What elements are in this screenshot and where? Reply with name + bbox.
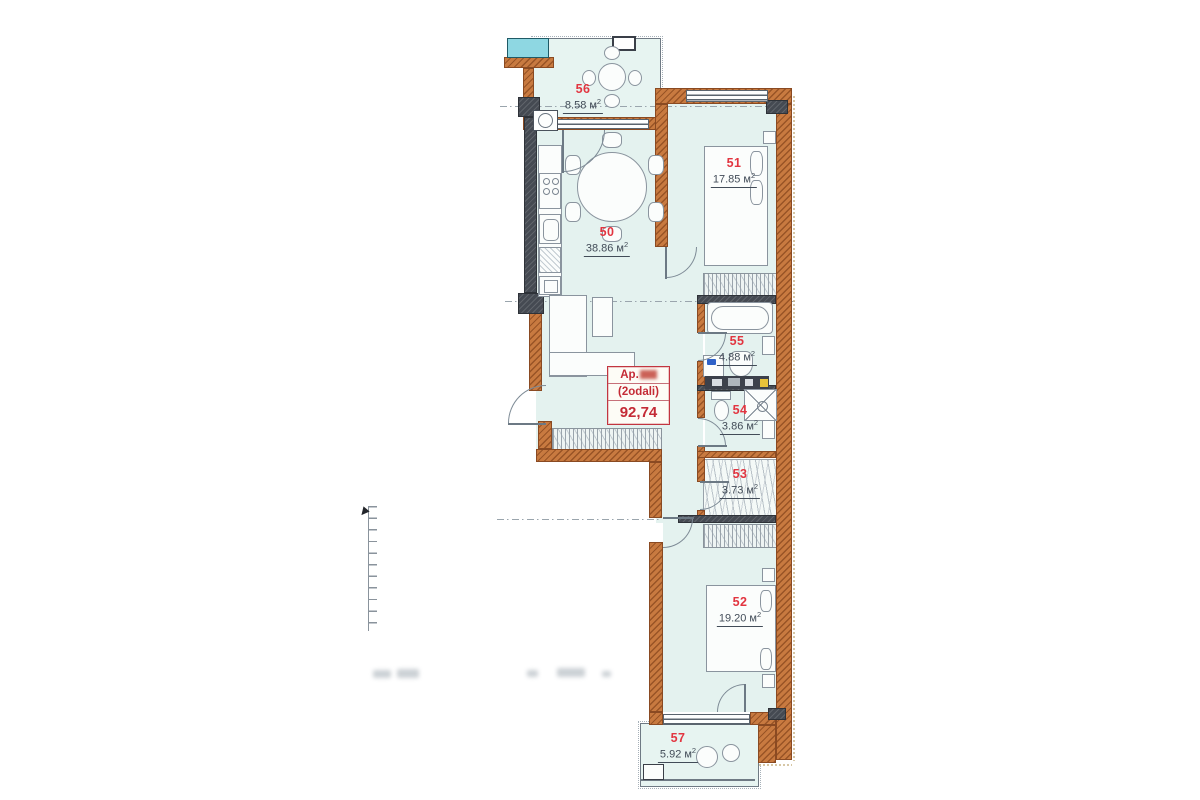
fan-box [533, 110, 558, 131]
room-54-label: 54 3.86 м2 [720, 403, 760, 435]
room-55-label: 55 4.88 м2 [717, 334, 757, 366]
axis-line [500, 106, 795, 107]
bathtub [707, 302, 773, 334]
wardrobe-strip-room-52 [703, 524, 778, 548]
kitchen-appliance [539, 247, 561, 273]
nightstand [762, 674, 775, 688]
room-51-label: 51 17.85 м2 [711, 156, 757, 188]
room-area: 38.86 м2 [584, 240, 630, 257]
redacted-apartment-number [640, 370, 657, 379]
room-area: 5.92 м2 [658, 746, 698, 763]
wall-insulation-stipple [758, 763, 792, 768]
room-57-label: 57 5.92 м2 [658, 731, 698, 763]
coffee-table [592, 297, 613, 337]
stove [539, 173, 561, 209]
door-arc [508, 385, 546, 423]
room-number: 53 [720, 467, 760, 481]
apartment-total-area: 92,74 [608, 401, 669, 424]
wall-segment [776, 104, 792, 760]
window-room-52 [663, 714, 750, 725]
bathroom-counter [705, 376, 769, 389]
wall-column [768, 708, 786, 720]
floor-plan-canvas: 56 8.58 м2 50 38.86 м2 51 17.85 м2 55 4.… [0, 0, 1200, 800]
toilet-tank [711, 391, 731, 400]
door-leaf [744, 684, 746, 712]
balcony-chair [722, 744, 740, 762]
dining-chair [648, 202, 664, 222]
wall-segment [649, 712, 663, 725]
wall-ledge [504, 57, 554, 68]
wall-segment [649, 462, 662, 518]
apartment-info-box: Ap. (2odali) 92,74 [607, 366, 670, 425]
balcony-box [643, 764, 664, 780]
apartment-type-row: (2odali) [608, 384, 669, 401]
wall-segment [697, 451, 776, 458]
watermark-smudge [397, 669, 419, 678]
room-area: 17.85 м2 [711, 171, 757, 188]
room-number: 57 [658, 731, 698, 745]
window-room-51 [686, 90, 768, 102]
wall-column [766, 100, 788, 114]
wall-insulation-stipple [792, 95, 797, 761]
wall-segment [649, 542, 663, 712]
watermark-smudge [527, 670, 538, 677]
nightstand [763, 131, 776, 144]
balcony-chair [604, 46, 620, 60]
balcony-chair [696, 746, 718, 768]
wardrobe-strip-room-50 [552, 428, 662, 450]
wall-segment [697, 303, 705, 333]
door-leaf [665, 247, 667, 279]
watermark-smudge [373, 670, 391, 678]
room-number: 50 [584, 225, 630, 239]
watermark-smudge [602, 671, 611, 677]
window-room-50 [553, 119, 649, 129]
room-area: 4.88 м2 [717, 349, 757, 366]
room-area: 3.73 м2 [720, 482, 760, 499]
watermark-smudge [557, 668, 585, 677]
closet-strip-above-bath [703, 273, 778, 297]
wall-post [523, 68, 534, 99]
kitchen-appliance [539, 276, 561, 295]
wall-segment [758, 725, 776, 763]
room-area: 3.86 м2 [720, 418, 760, 435]
pillow [760, 648, 772, 670]
wall-cabinet [762, 336, 775, 355]
room-56-label: 56 8.58 м2 [563, 82, 603, 114]
axis-line [497, 519, 662, 520]
wall-segment [655, 104, 668, 247]
wall-segment [536, 449, 662, 462]
room-number: 55 [717, 334, 757, 348]
room-number: 51 [711, 156, 757, 170]
room-52-label: 52 19.20 м2 [717, 595, 763, 627]
balcony-chair [628, 70, 642, 86]
apartment-number-row: Ap. [608, 367, 669, 384]
room-number: 52 [717, 595, 763, 609]
wall-column [524, 117, 537, 293]
room-area: 19.20 м2 [717, 610, 763, 627]
scale-ruler [368, 506, 377, 631]
dining-chair [565, 202, 581, 222]
wall-segment [529, 313, 542, 391]
ac-unit [507, 38, 549, 58]
door-leaf [698, 445, 727, 447]
door-leaf [508, 423, 546, 425]
kitchen-sink [539, 214, 561, 244]
room-53-label: 53 3.73 м2 [720, 467, 760, 499]
wall-segment [538, 421, 552, 449]
dining-chair [648, 155, 664, 175]
dining-chair [602, 132, 622, 148]
door-leaf [663, 517, 694, 519]
room-50-label: 50 38.86 м2 [584, 225, 630, 257]
balcony-chair [604, 94, 620, 108]
room-number: 56 [563, 82, 603, 96]
room-number: 54 [720, 403, 760, 417]
room-area: 8.58 м2 [563, 97, 603, 114]
wall-cabinet [762, 420, 775, 439]
nightstand [762, 568, 775, 582]
door-leaf [562, 130, 564, 173]
